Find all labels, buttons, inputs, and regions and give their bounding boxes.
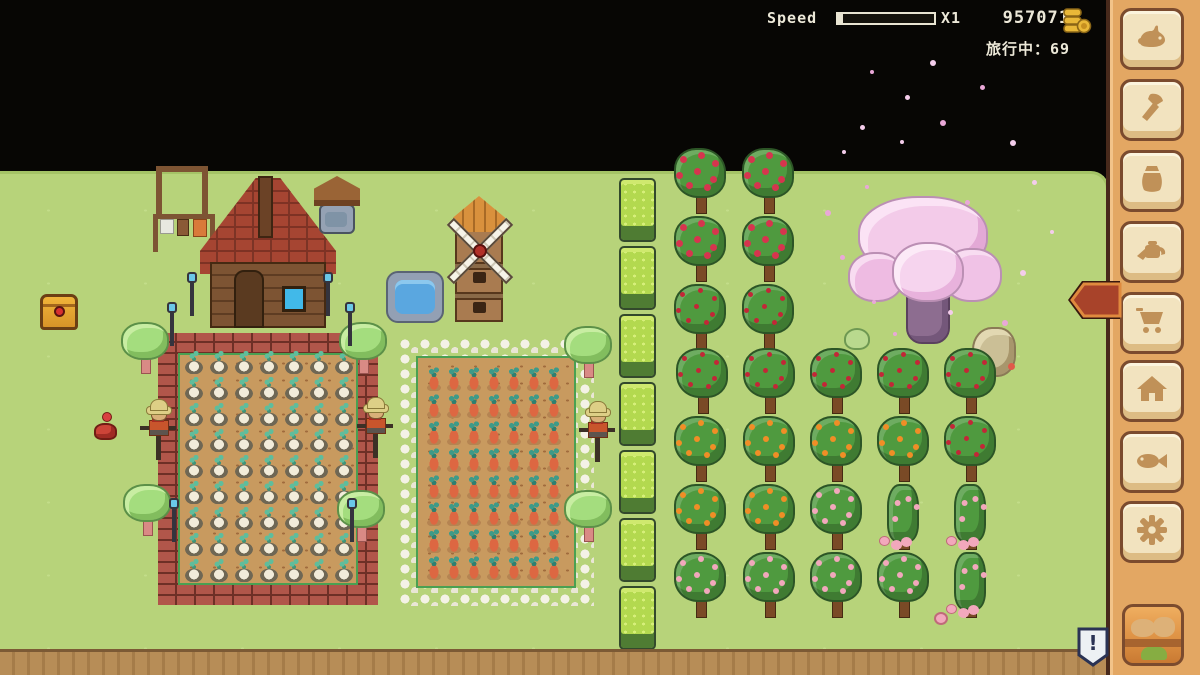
crop-turnip <box>259 503 279 530</box>
house-icon <box>1134 371 1170 411</box>
bush-tree <box>122 484 172 536</box>
crop-turnip <box>334 373 354 400</box>
crop-turnip <box>259 555 279 582</box>
fruit-tree-orange[interactable] <box>741 416 797 482</box>
crop-turnip <box>234 347 254 374</box>
scarecrow-dome <box>367 397 385 409</box>
scarecrow-pole <box>373 432 378 458</box>
crop-carrot <box>444 445 464 472</box>
alert-shield-badge[interactable]: ! <box>1076 626 1110 668</box>
alert-exclamation: ! <box>1088 631 1097 655</box>
crop-turnip <box>209 347 229 374</box>
hedge-segment <box>619 382 656 446</box>
tree-canopy <box>743 484 795 534</box>
watering-can-icon <box>1134 232 1170 272</box>
fruit-tree-cherry[interactable] <box>672 284 728 350</box>
tree-fruits <box>877 486 883 492</box>
crop-turnip <box>234 399 254 426</box>
crop-turnip <box>184 477 204 504</box>
crop-turnip <box>334 425 354 452</box>
hedge-segment <box>619 450 656 514</box>
cherry-blossom-tree[interactable] <box>848 190 1004 348</box>
tree-canopy <box>887 484 919 542</box>
dropped-peaches <box>946 604 957 614</box>
fruit-tree-peach[interactable] <box>808 484 864 550</box>
fruit-tree-apple[interactable] <box>740 216 796 282</box>
lamp-post <box>168 498 180 542</box>
crop-turnip <box>209 477 229 504</box>
tree-canopy <box>954 552 986 610</box>
chest-gem <box>54 306 65 317</box>
crop-turnip <box>184 425 204 452</box>
bag-icon <box>1134 161 1170 201</box>
crop-carrot <box>464 526 484 553</box>
fruit-tree-peach-sparse[interactable] <box>875 484 931 550</box>
crop-carrot <box>444 391 464 418</box>
crop-turnip <box>234 373 254 400</box>
tree-canopy <box>742 216 794 266</box>
portrait-bush <box>1141 647 1167 660</box>
crop-carrot <box>444 472 464 499</box>
crop-turnip <box>309 347 329 374</box>
rabbit-icon <box>1134 19 1170 59</box>
blossom-petal <box>842 150 846 154</box>
fruit-tree-cherry[interactable] <box>942 416 998 482</box>
fruit-tree-orange[interactable] <box>741 484 797 550</box>
crop-turnip <box>184 399 204 426</box>
crop-carrot <box>544 364 564 391</box>
fruit-tree-cherry[interactable] <box>740 284 796 350</box>
farmhouse-ridge-beam <box>258 176 273 238</box>
crop-carrot <box>424 553 444 580</box>
tree-canopy <box>944 416 996 466</box>
tree-fruits <box>944 554 950 560</box>
scene-portrait-button[interactable] <box>1122 604 1184 666</box>
bush-tree <box>120 322 170 374</box>
crop-carrot <box>524 472 544 499</box>
lamp-post <box>346 498 358 542</box>
treasure-chest[interactable] <box>40 294 78 330</box>
crop-turnip <box>309 555 329 582</box>
crop-carrot <box>544 526 564 553</box>
fruit-tree-peach[interactable] <box>672 552 728 618</box>
scarecrow[interactable] <box>357 396 393 458</box>
crop-carrot <box>444 499 464 526</box>
tree-canopy <box>877 552 929 602</box>
tree-fruits <box>674 286 679 291</box>
field-stone-bordered[interactable] <box>398 338 594 606</box>
crop-carrot <box>484 364 504 391</box>
crop-turnip <box>234 451 254 478</box>
scarecrow[interactable] <box>579 400 615 462</box>
crop-carrot <box>464 499 484 526</box>
fruit-tree-cherry[interactable] <box>741 348 797 414</box>
tree-canopy <box>810 484 862 534</box>
tree-fruits <box>674 554 680 560</box>
crop-turnip <box>334 555 354 582</box>
crop-turnip <box>184 347 204 374</box>
bush-tree <box>563 490 613 542</box>
speed-label: Speed <box>767 9 817 27</box>
blossom-petal <box>865 185 869 189</box>
lamp-light <box>323 272 333 283</box>
bush-tree-canopy <box>564 490 612 528</box>
flower <box>1008 363 1015 370</box>
windmill-hub <box>473 244 487 258</box>
tree-fruits <box>810 554 816 560</box>
bush-tree-canopy <box>337 490 385 528</box>
bush-tree <box>336 490 386 542</box>
clothes-shirt <box>160 219 174 234</box>
blossom-petal <box>1010 140 1016 146</box>
portrait-tree <box>1153 617 1175 637</box>
blossom-petal <box>840 255 845 260</box>
lamp-post <box>186 272 198 316</box>
tree-canopy <box>877 416 929 466</box>
tree-canopy <box>944 348 996 398</box>
crop-turnip <box>209 503 229 530</box>
sidebar-button-settings[interactable] <box>1120 501 1184 563</box>
lamp-pole <box>326 282 330 316</box>
crop-carrot <box>424 526 444 553</box>
crop-turnip <box>234 529 254 556</box>
sidebar-button-inventory[interactable] <box>1120 150 1184 212</box>
crop-turnip <box>284 425 304 452</box>
crop-carrot <box>544 472 564 499</box>
crop-turnip <box>309 477 329 504</box>
tree-fruits <box>674 418 680 424</box>
blossom-petal <box>900 140 904 144</box>
sidebar-button-watering[interactable] <box>1120 221 1184 283</box>
crop-carrot <box>464 418 484 445</box>
fruit-tree-orange[interactable] <box>875 416 931 482</box>
scarecrow-dome <box>589 401 607 413</box>
crop-carrot <box>504 364 524 391</box>
blossom-petal <box>825 210 831 216</box>
fruit-tree-apple[interactable] <box>740 148 796 214</box>
crop-carrot <box>504 499 524 526</box>
tree-canopy <box>810 348 862 398</box>
crop-turnip <box>209 399 229 426</box>
blossom-petal <box>1002 320 1008 326</box>
scarecrow-pole <box>156 434 161 460</box>
crop-carrot <box>524 391 544 418</box>
tree-canopy <box>810 552 862 602</box>
gear-icon <box>1134 512 1170 552</box>
fruit-tree-cherry[interactable] <box>674 348 730 414</box>
crop-turnip <box>259 477 279 504</box>
crop-carrot <box>484 391 504 418</box>
tree-canopy <box>674 216 726 266</box>
tree-canopy <box>742 284 794 334</box>
scarecrow-body <box>588 422 608 438</box>
fruit-tree-peach-sparse[interactable] <box>942 552 998 618</box>
coin-count: 957071 <box>1003 8 1070 28</box>
sidebar-collapse-arrow[interactable] <box>1068 280 1122 320</box>
lamp-post <box>322 272 334 316</box>
fruit-tree-orange[interactable] <box>672 416 728 482</box>
lamp-light <box>167 302 177 313</box>
crop-carrot <box>424 364 444 391</box>
travel-status: 旅行中：69 <box>986 38 1070 59</box>
speed-bar[interactable] <box>836 12 936 25</box>
blossom-petal <box>1020 270 1026 276</box>
crop-carrot <box>504 472 524 499</box>
crop-carrot <box>524 499 544 526</box>
tree-canopy <box>877 348 929 398</box>
crop-turnip <box>309 399 329 426</box>
crop-carrot <box>544 418 564 445</box>
crop-carrot <box>424 472 444 499</box>
crop-carrot <box>524 418 544 445</box>
pond-water <box>395 280 435 314</box>
fruit-tree-orange[interactable] <box>672 484 728 550</box>
tree-fruits <box>877 350 882 355</box>
crop-carrot <box>484 418 504 445</box>
crop-carrot <box>544 553 564 580</box>
tree-fruits <box>742 218 749 225</box>
crop-turnip <box>309 529 329 556</box>
tree-fruits <box>742 286 747 291</box>
tree-fruits <box>944 418 949 423</box>
crop-carrot <box>464 391 484 418</box>
fruit-tree-apple[interactable] <box>672 216 728 282</box>
crop-turnip <box>184 373 204 400</box>
clothes-pants <box>177 219 189 236</box>
tree-fruits <box>743 350 748 355</box>
tree-fruits <box>743 486 749 492</box>
tree-canopy <box>674 284 726 334</box>
crop-turnip <box>284 477 304 504</box>
crop-carrot <box>504 391 524 418</box>
fruit-tree-cherry[interactable] <box>942 348 998 414</box>
lamp-pole <box>190 282 194 316</box>
crop-carrot <box>464 472 484 499</box>
red-creature[interactable] <box>93 412 119 442</box>
well-water <box>325 212 347 227</box>
crop-carrot <box>504 418 524 445</box>
sidebar-button-animals[interactable] <box>1120 8 1184 70</box>
crop-turnip <box>184 451 204 478</box>
scarecrow[interactable] <box>140 398 176 460</box>
tree-canopy <box>954 484 986 542</box>
sidebar-button-home[interactable] <box>1120 360 1184 422</box>
tree-fruits <box>877 554 883 560</box>
lamp-light <box>187 272 197 283</box>
bush-tree <box>563 326 613 378</box>
portrait-tree <box>1131 619 1155 637</box>
crop-carrot <box>524 445 544 472</box>
crop-carrot <box>444 526 464 553</box>
windmill[interactable] <box>447 196 517 324</box>
blossom-petal <box>980 85 985 90</box>
blossom-petal <box>1032 180 1037 185</box>
lamp-post <box>344 302 356 346</box>
crop-carrot <box>464 553 484 580</box>
fruit-tree-peach-sparse[interactable] <box>942 484 998 550</box>
bush-tree-canopy <box>564 326 612 364</box>
dirt-path <box>0 649 1106 675</box>
fruit-tree-cherry[interactable] <box>808 348 864 414</box>
pond <box>386 271 444 323</box>
crop-turnip <box>259 529 279 556</box>
hedge-segment <box>619 178 656 242</box>
blossom-petal <box>905 95 910 100</box>
crop-turnip <box>209 555 229 582</box>
crop-carrot <box>424 418 444 445</box>
crop-carrot <box>544 445 564 472</box>
crop-turnip <box>259 399 279 426</box>
crop-carrot <box>444 553 464 580</box>
cart-icon <box>1134 303 1170 343</box>
crop-turnip <box>284 451 304 478</box>
crop-turnip <box>209 373 229 400</box>
hedge-segment <box>619 518 656 582</box>
tree-fruits <box>676 350 681 355</box>
tree-fruits <box>674 150 681 157</box>
crop-turnip <box>309 451 329 478</box>
crop-turnip <box>284 555 304 582</box>
crop-turnip <box>184 503 204 530</box>
crop-carrot <box>464 445 484 472</box>
tree-canopy <box>674 552 726 602</box>
lamp-light <box>169 498 179 509</box>
tree-canopy <box>743 552 795 602</box>
crop-carrot <box>504 553 524 580</box>
crop-carrot <box>484 553 504 580</box>
tree-fruits <box>877 418 883 424</box>
sidebar-button-shop[interactable] <box>1120 292 1184 354</box>
crop-carrot <box>484 499 504 526</box>
tree-canopy <box>674 148 726 198</box>
crop-carrot <box>484 526 504 553</box>
crop-turnip <box>184 529 204 556</box>
crop-carrot <box>424 445 444 472</box>
fruit-tree-orange[interactable] <box>808 416 864 482</box>
dropped-peaches <box>879 536 890 546</box>
crop-carrot <box>444 364 464 391</box>
scarecrow-dome <box>150 399 168 411</box>
speed-bar-fill <box>838 14 843 23</box>
crop-carrot <box>444 418 464 445</box>
well[interactable] <box>314 176 360 236</box>
farmhouse-door[interactable] <box>234 270 264 328</box>
crop-carrot <box>544 391 564 418</box>
tree-fruits <box>674 218 681 225</box>
well-roof <box>314 176 360 206</box>
tree-fruits <box>743 554 749 560</box>
tree-canopy <box>743 416 795 466</box>
tree-fruits <box>810 418 816 424</box>
crop-carrot <box>424 391 444 418</box>
fruit-tree-peach[interactable] <box>875 552 931 618</box>
tree-fruits <box>674 486 680 492</box>
blossom-petal <box>860 125 865 130</box>
blossom-petal <box>940 120 946 126</box>
crop-turnip <box>209 529 229 556</box>
tree-fruits <box>944 350 949 355</box>
coin-stack-icon <box>1062 5 1092 37</box>
hedge-segment <box>619 314 656 378</box>
crop-turnip <box>334 451 354 478</box>
tree-fruits <box>810 486 816 492</box>
hedge-segment <box>619 586 656 650</box>
crop-turnip <box>309 503 329 530</box>
crop-turnip <box>309 373 329 400</box>
fruit-tree-apple[interactable] <box>672 148 728 214</box>
crop-carrot <box>424 499 444 526</box>
crop-carrot <box>504 445 524 472</box>
windmill-blades <box>437 208 523 294</box>
blossom-petal <box>930 60 936 66</box>
crop-turnip <box>234 555 254 582</box>
lamp-pole <box>172 508 176 542</box>
scarecrow-pole <box>595 436 600 462</box>
crop-turnip <box>209 451 229 478</box>
crop-carrot <box>544 499 564 526</box>
crop-turnip <box>234 425 254 452</box>
slime-creature[interactable] <box>844 328 870 350</box>
game-screen: Speed X1 957071 旅行中：69 ! <box>0 0 1200 675</box>
fruit-tree-peach[interactable] <box>741 552 797 618</box>
tree-fruits <box>742 150 749 157</box>
crop-turnip <box>334 399 354 426</box>
crop-turnip <box>259 451 279 478</box>
blossom-petal <box>872 300 876 304</box>
fruit-tree-peach[interactable] <box>808 552 864 618</box>
farmhouse-window <box>282 286 306 312</box>
crop-turnip <box>284 373 304 400</box>
lamp-light <box>345 302 355 313</box>
blossom-petal <box>1050 230 1054 234</box>
blossom-petal <box>893 332 897 336</box>
crop-turnip <box>259 373 279 400</box>
crop-turnip <box>259 347 279 374</box>
fruit-tree-cherry[interactable] <box>875 348 931 414</box>
crop-turnip <box>259 425 279 452</box>
tree-canopy <box>743 348 795 398</box>
hedge-segment <box>619 246 656 310</box>
fish-icon <box>1134 442 1170 482</box>
tree-canopy <box>674 416 726 466</box>
tree-canopy <box>742 148 794 198</box>
scarecrow-body <box>149 420 169 436</box>
crop-carrot <box>524 526 544 553</box>
bush-tree-canopy <box>123 484 171 522</box>
tree-fruits <box>810 350 815 355</box>
crop-carrot <box>524 553 544 580</box>
crop-turnip <box>309 425 329 452</box>
lamp-pole <box>348 312 352 346</box>
blossom-petal <box>948 310 953 315</box>
crop-carrot <box>504 526 524 553</box>
speed-multiplier: X1 <box>941 9 961 27</box>
crop-carrot <box>464 364 484 391</box>
crop-carrot <box>524 364 544 391</box>
lamp-pole <box>350 508 354 542</box>
portrait-ground <box>1125 639 1181 647</box>
crop-turnip <box>284 347 304 374</box>
scarecrow-body <box>366 418 386 434</box>
tree-canopy <box>810 416 862 466</box>
bush-tree-canopy <box>121 322 169 360</box>
sidebar-button-fishing[interactable] <box>1120 431 1184 493</box>
tree-canopy <box>674 484 726 534</box>
axe-icon <box>1134 90 1170 130</box>
lamp-pole <box>170 312 174 346</box>
crop-carrot <box>484 472 504 499</box>
sidebar-button-chopping[interactable] <box>1120 79 1184 141</box>
